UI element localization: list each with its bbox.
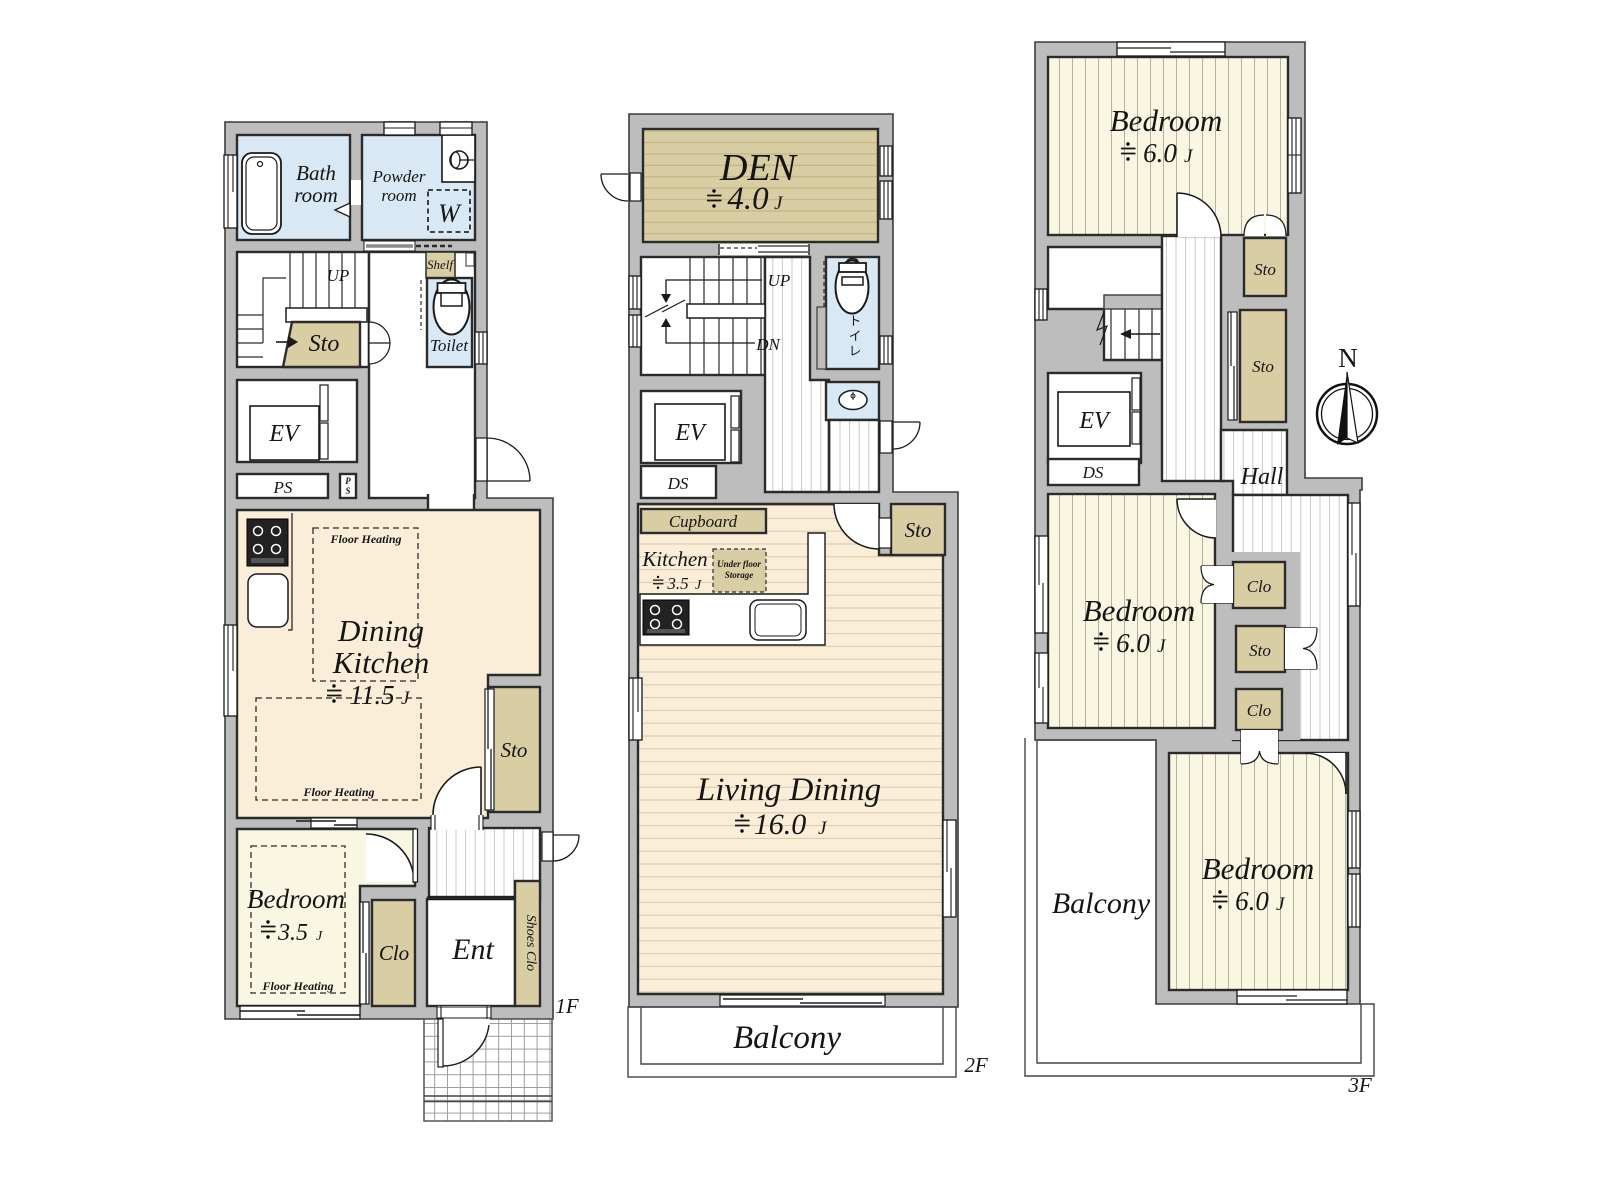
svg-text:Sto: Sto bbox=[1252, 357, 1274, 376]
svg-text:Cupboard: Cupboard bbox=[669, 512, 738, 531]
svg-text:P: P bbox=[345, 476, 351, 486]
svg-text:Storage: Storage bbox=[725, 570, 754, 580]
svg-text:Living Dining: Living Dining bbox=[696, 772, 881, 808]
svg-text:Dining: Dining bbox=[337, 613, 424, 648]
svg-text:UP: UP bbox=[327, 266, 350, 285]
svg-text:EV: EV bbox=[1078, 408, 1111, 434]
svg-text:6.0: 6.0 bbox=[1116, 628, 1150, 658]
svg-text:Floor Heating: Floor Heating bbox=[302, 785, 374, 799]
svg-text:Clo: Clo bbox=[379, 941, 409, 965]
svg-text:2F: 2F bbox=[964, 1053, 988, 1077]
svg-text:N: N bbox=[1338, 343, 1358, 373]
svg-text:Sto: Sto bbox=[1254, 260, 1276, 279]
svg-text:S: S bbox=[345, 486, 350, 496]
svg-text:6.0: 6.0 bbox=[1235, 886, 1269, 916]
svg-text:Kitchen: Kitchen bbox=[332, 645, 429, 680]
svg-text:Toilet: Toilet bbox=[430, 336, 469, 355]
svg-text:1F: 1F bbox=[555, 994, 579, 1018]
svg-text:J: J bbox=[316, 929, 323, 944]
svg-text:PS: PS bbox=[273, 478, 293, 497]
svg-text:3.5: 3.5 bbox=[666, 574, 688, 593]
svg-text:Ent: Ent bbox=[451, 933, 494, 966]
svg-text:W: W bbox=[438, 199, 462, 228]
svg-text:Under floor: Under floor bbox=[717, 559, 761, 569]
svg-text:DS: DS bbox=[1082, 463, 1104, 482]
svg-text:4.0: 4.0 bbox=[727, 181, 769, 217]
svg-text:Bedroom: Bedroom bbox=[1110, 103, 1223, 138]
svg-text:Powder: Powder bbox=[372, 167, 426, 186]
svg-text:DS: DS bbox=[667, 474, 689, 493]
svg-text:3.5: 3.5 bbox=[277, 920, 308, 946]
svg-text:EV: EV bbox=[268, 421, 301, 447]
svg-text:room: room bbox=[381, 186, 416, 205]
svg-text:Sto: Sto bbox=[905, 518, 932, 542]
svg-text:Hall: Hall bbox=[1240, 464, 1284, 490]
svg-text:Shelf: Shelf bbox=[427, 257, 455, 272]
svg-text:Kitchen: Kitchen bbox=[641, 547, 707, 571]
svg-text:3F: 3F bbox=[1347, 1073, 1372, 1097]
svg-text:Sto: Sto bbox=[1249, 641, 1271, 660]
svg-text:Bedroom: Bedroom bbox=[1083, 593, 1196, 628]
svg-text:Bath: Bath bbox=[296, 161, 336, 185]
svg-text:6.0: 6.0 bbox=[1143, 138, 1177, 168]
svg-text:トイレ: トイレ bbox=[847, 314, 862, 359]
svg-text:room: room bbox=[294, 183, 338, 207]
svg-text:EV: EV bbox=[674, 420, 707, 446]
svg-text:Floor Heating: Floor Heating bbox=[329, 532, 401, 546]
svg-text:Sto: Sto bbox=[501, 738, 528, 762]
svg-text:DN: DN bbox=[755, 335, 781, 354]
svg-text:J: J bbox=[695, 578, 702, 593]
svg-text:Clo: Clo bbox=[1247, 577, 1272, 596]
svg-text:Floor Heating: Floor Heating bbox=[261, 979, 333, 993]
svg-text:Bedroom: Bedroom bbox=[247, 884, 345, 914]
svg-text:Clo: Clo bbox=[1247, 701, 1272, 720]
svg-text:Shoes Clo: Shoes Clo bbox=[523, 915, 538, 971]
svg-text:Bedroom: Bedroom bbox=[1202, 851, 1315, 886]
svg-text:UP: UP bbox=[768, 271, 791, 290]
svg-text:Sto: Sto bbox=[309, 331, 340, 357]
svg-text:16.0: 16.0 bbox=[754, 808, 807, 841]
svg-text:Balcony: Balcony bbox=[733, 1020, 841, 1056]
svg-text:11.5: 11.5 bbox=[349, 680, 394, 710]
svg-text:Balcony: Balcony bbox=[1052, 887, 1151, 920]
